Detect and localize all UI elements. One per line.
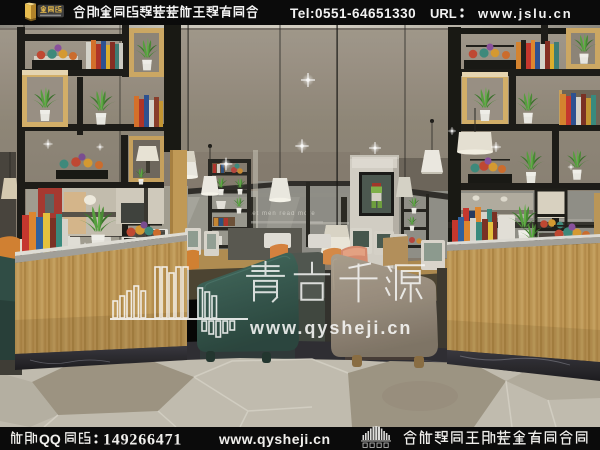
svg-text:QQ: QQ [39,431,61,447]
svg-text:www.qysheji.cn: www.qysheji.cn [218,431,331,447]
svg-text:URL: URL [430,6,457,21]
svg-text:Tel:0551-64651330: Tel:0551-64651330 [290,6,416,21]
svg-text:149266471: 149266471 [103,432,182,449]
svg-text:www.jslu.cn: www.jslu.cn [477,6,572,21]
